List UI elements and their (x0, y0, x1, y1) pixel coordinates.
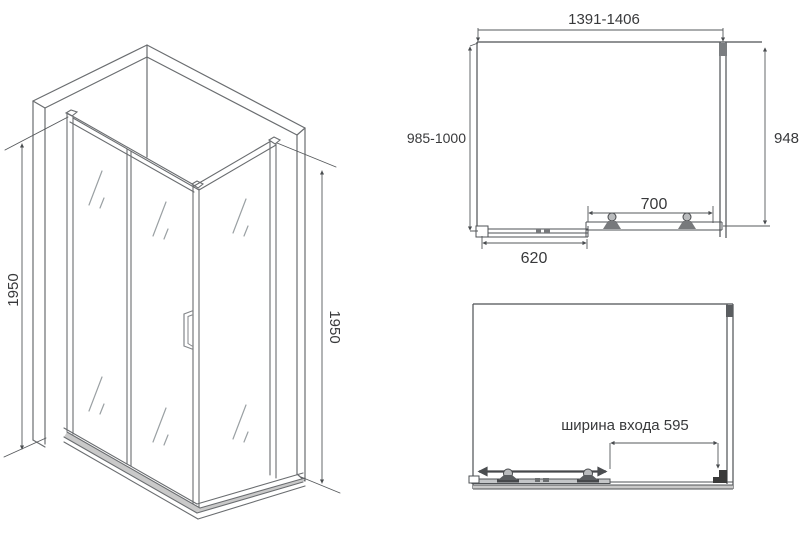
fixed-panel-track (476, 226, 588, 237)
fixed-panel-glass-mark-lower (89, 377, 104, 414)
wall-top-outer-edge (33, 45, 305, 128)
track-shade (473, 485, 733, 489)
fixed-track-clamp-a (536, 229, 541, 233)
left-dim-ext-bottom (4, 438, 46, 457)
side-back-post-cap (269, 137, 280, 144)
left-dim-ext-top (5, 117, 68, 150)
side-depth-label: 948 (774, 130, 799, 147)
front-right-post (193, 185, 199, 508)
door-clamp-a (535, 478, 540, 482)
side-back-post (270, 140, 276, 478)
overall-width-label: 1391-1406 (568, 11, 640, 28)
right-dim-ext-bottom (301, 477, 340, 493)
side-top-rail (194, 141, 276, 190)
roller-bracket (498, 475, 518, 480)
isometric-view: 1950 1950 (4, 45, 343, 519)
roller-wheel (608, 213, 616, 221)
right-height-dimension: 1950 (277, 143, 343, 493)
front-track-shade (64, 432, 200, 513)
right-dim-ext-top (277, 143, 336, 167)
fixed-track-left-block (476, 226, 488, 237)
enclosure-frame (66, 110, 280, 508)
entrance-wall-profile (727, 304, 733, 489)
wall-left-end-cap (33, 101, 45, 108)
roller-icon (603, 213, 621, 229)
depth-range-dimension: 985-1000 (407, 43, 478, 231)
entrance-wall-joint (726, 305, 733, 317)
roller-icon (678, 213, 696, 229)
side-panel-glass-mark-upper (233, 199, 248, 236)
entrance-width-dimension: ширина входа 595 (561, 417, 718, 469)
door-clamp-b (543, 478, 549, 482)
door-handle (184, 311, 192, 349)
entrance-width-label: ширина входа 595 (561, 417, 689, 434)
roller-wheel (683, 213, 691, 221)
overall-width-dimension: 1391-1406 (478, 11, 723, 41)
door-left-stop (469, 476, 479, 483)
fixed-track-clamp-b (544, 229, 550, 233)
front-top-rail (67, 113, 199, 192)
side-depth-dimension: 948 (723, 48, 799, 226)
roller-bracket (578, 475, 598, 480)
left-height-dimension: 1950 (4, 117, 68, 457)
right-height-label: 1950 (326, 310, 343, 343)
wall-right-end-cap (297, 128, 305, 135)
fixed-width-exts (482, 236, 587, 249)
drawing-canvas: 1950 1950 (0, 0, 800, 535)
door-divider-edge (127, 149, 131, 466)
fixed-width-dimension: 620 (482, 236, 587, 267)
fixed-panel-glass-mark-upper (89, 171, 104, 208)
door-handle-inner (188, 315, 192, 346)
fixed-width-label: 620 (521, 250, 548, 267)
bottom-track-iso (64, 428, 305, 519)
top-plan-outline (477, 42, 762, 238)
sliding-door-bar (586, 213, 722, 237)
entrance-plan-view: ширина входа 595 (469, 304, 733, 489)
wall-top-joint (719, 43, 727, 56)
fixed-track-lines (477, 226, 588, 237)
technical-drawing: 1950 1950 (0, 0, 800, 535)
glass-marks (89, 171, 248, 445)
door-width-dimension: 700 (588, 196, 713, 223)
sliding-door-glass-mark-upper (153, 202, 168, 239)
side-panel-glass-mark-lower (233, 405, 248, 442)
wall-profile (720, 42, 726, 238)
sliding-door-glass-mark-lower (153, 408, 168, 445)
depth-range-label: 985-1000 (407, 130, 466, 146)
front-left-post (67, 113, 73, 434)
door-stopper (713, 470, 727, 483)
opened-door-assembly (469, 469, 610, 484)
left-height-label: 1950 (5, 273, 22, 306)
top-plan-view: 1391-1406 985-1000 948 700 620 (407, 11, 799, 267)
door-width-label: 700 (641, 196, 668, 213)
entrance-plan-outline (473, 304, 733, 489)
